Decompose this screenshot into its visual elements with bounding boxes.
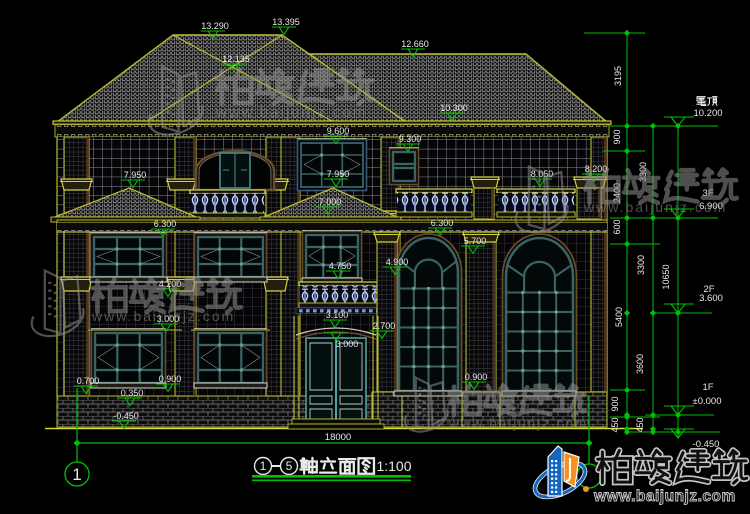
svg-text:5: 5 — [286, 459, 293, 473]
svg-text:2.700: 2.700 — [373, 321, 396, 331]
svg-text:13.395: 13.395 — [272, 17, 300, 27]
svg-text:1F: 1F — [702, 382, 713, 393]
svg-text:12.660: 12.660 — [401, 39, 429, 49]
svg-text:www.baijunjz.com: www.baijunjz.com — [593, 488, 736, 505]
svg-text:900: 900 — [610, 396, 620, 411]
svg-text:6.300: 6.300 — [154, 219, 177, 229]
svg-text:600: 600 — [612, 219, 622, 234]
svg-text:1: 1 — [260, 459, 267, 473]
svg-text:www.baijunjz.com: www.baijunjz.com — [583, 199, 727, 215]
svg-text:13.290: 13.290 — [201, 21, 229, 31]
svg-text:4.750: 4.750 — [329, 261, 352, 271]
svg-text:7.000: 7.000 — [319, 197, 342, 207]
svg-text:±0.000: ±0.000 — [693, 396, 722, 407]
svg-text:450: 450 — [610, 417, 620, 432]
svg-text:3195: 3195 — [613, 66, 623, 86]
svg-text:3600: 3600 — [635, 354, 645, 374]
svg-text:3300: 3300 — [636, 255, 646, 275]
svg-text:7.950: 7.950 — [124, 170, 147, 180]
svg-text:0.350: 0.350 — [121, 388, 144, 398]
svg-text:5.700: 5.700 — [464, 236, 487, 246]
svg-text:0.900: 0.900 — [465, 372, 488, 382]
svg-text:1: 1 — [72, 465, 81, 484]
svg-text:0.900: 0.900 — [159, 374, 182, 384]
svg-text:3.600: 3.600 — [699, 293, 723, 304]
svg-text:6.300: 6.300 — [431, 218, 454, 228]
svg-text:10650: 10650 — [661, 264, 671, 289]
svg-text:-0.450: -0.450 — [113, 411, 139, 421]
svg-text:3.000: 3.000 — [336, 339, 359, 349]
svg-text:12.135: 12.135 — [222, 54, 250, 64]
svg-text:www.baijunjz.com: www.baijunjz.com — [215, 104, 367, 121]
svg-text:450: 450 — [635, 417, 645, 432]
svg-text:7.950: 7.950 — [327, 169, 350, 179]
svg-text:3.100: 3.100 — [326, 310, 349, 320]
svg-text:1:100: 1:100 — [376, 458, 411, 474]
svg-text:900: 900 — [612, 129, 622, 144]
svg-text:10.300: 10.300 — [440, 103, 468, 113]
svg-text:9.600: 9.600 — [327, 126, 350, 136]
svg-text:4.900: 4.900 — [386, 257, 409, 267]
svg-text:0.700: 0.700 — [77, 376, 100, 386]
svg-text:9.300: 9.300 — [399, 134, 422, 144]
svg-text:10.200: 10.200 — [693, 108, 722, 119]
svg-text:5400: 5400 — [614, 307, 624, 327]
svg-text:www.baijunjz.com: www.baijunjz.com — [448, 416, 588, 431]
svg-text:www.baijunjz.com: www.baijunjz.com — [91, 308, 235, 324]
svg-text:18000: 18000 — [325, 432, 351, 443]
